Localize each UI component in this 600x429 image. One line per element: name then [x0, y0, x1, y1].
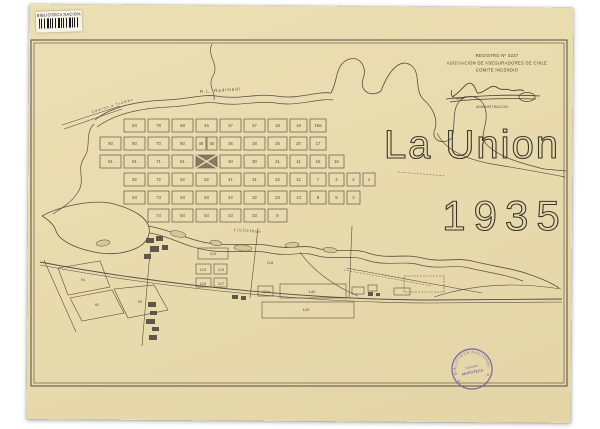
block-number: 81: [132, 159, 137, 164]
block-number: 49: [199, 141, 204, 146]
block-number: 60: [180, 141, 185, 146]
block-number: 33: [252, 213, 257, 218]
block-number: 91: [108, 159, 113, 164]
building: [162, 245, 168, 250]
street-south-1: [250, 228, 258, 298]
signature: [446, 83, 540, 102]
road-east-2: [434, 285, 561, 297]
field-line-2: [142, 252, 150, 346]
parcel-number: 115: [218, 267, 225, 272]
block-number: 73: [156, 195, 161, 200]
signature-flourish: [446, 90, 540, 102]
block-number: 26: [275, 141, 280, 146]
block-number: 27: [252, 123, 257, 128]
block-number: 82: [132, 177, 137, 182]
parcel-number: 113: [200, 267, 207, 272]
block-number: 13: [296, 195, 301, 200]
registro-number: REGISTRO Nº 3237: [476, 53, 519, 58]
block-number: 31: [252, 177, 257, 182]
building: [241, 296, 246, 300]
map-label: Llollelhue: [234, 227, 262, 234]
block-number: 74: [156, 213, 161, 218]
parcel-number: 92: [95, 302, 100, 307]
block-number: 36: [228, 141, 233, 146]
road-east-1: [346, 268, 482, 293]
block-number: 20: [296, 141, 301, 146]
building: [152, 327, 159, 331]
block-number: 18: [275, 123, 280, 128]
building-outline: [352, 287, 364, 294]
block-number: 71: [156, 159, 161, 164]
oxbow-lagoon: [42, 202, 149, 253]
block-number: 23: [275, 195, 280, 200]
river-island: [96, 239, 111, 247]
block-number: 83: [132, 195, 137, 200]
parcel-number: 118: [267, 260, 274, 265]
block-number: 21: [275, 159, 280, 164]
building: [156, 236, 163, 241]
block-number: 50: [210, 141, 215, 146]
creek-west: [53, 124, 94, 214]
registro-committee: COMITE INCENDIO: [476, 68, 519, 73]
block-number: 72: [156, 177, 161, 182]
parcel-number: 120: [303, 307, 310, 312]
parcel-number: 91: [81, 277, 86, 282]
building: [368, 292, 373, 296]
river-island: [170, 229, 187, 238]
building: [148, 302, 156, 307]
map-title: La Union: [384, 123, 560, 167]
parcel-number: 117: [218, 281, 225, 286]
block-number: 53: [204, 195, 209, 200]
block-number: 17: [316, 141, 321, 146]
block-number: 58: [180, 123, 185, 128]
block-number: 37: [228, 123, 233, 128]
block-number: 64: [180, 213, 185, 218]
building: [144, 254, 151, 259]
road-trumao-1: [62, 106, 120, 125]
block-number: 61: [180, 159, 185, 164]
block-number: 5: [335, 195, 338, 200]
block-number: 30: [252, 159, 257, 164]
block-number: 16: [316, 159, 321, 164]
block-number: 28: [252, 141, 257, 146]
building: [149, 335, 157, 340]
building-outline: [394, 288, 410, 295]
block-number: 43: [228, 213, 233, 218]
block-number: 32: [252, 195, 257, 200]
signature-loop: [519, 93, 535, 102]
block-number: 46: [204, 123, 209, 128]
scanned-map-page: { "library_label": { "text": "BIBLIOTECA…: [0, 0, 600, 429]
block-number: 19a: [314, 123, 322, 128]
signature-caption: ADMINISTRACION: [476, 105, 508, 109]
micro-text-railway: [344, 270, 432, 286]
parcel-number: 93: [138, 299, 143, 304]
street-south-2: [349, 226, 352, 298]
block-number: 80: [132, 141, 137, 146]
micro-text-river: [398, 172, 446, 176]
registro-block: REGISTRO Nº 3237 ASOCIACION DE ASEGURADO…: [446, 53, 547, 109]
block-number: 2: [352, 177, 355, 182]
building-outline: [368, 285, 377, 291]
block-number: 90: [108, 141, 113, 146]
block-number: 79: [156, 123, 161, 128]
river-island: [234, 244, 252, 252]
block-number: 7: [317, 177, 320, 182]
building: [146, 238, 154, 243]
block-number: 9: [276, 213, 279, 218]
stamp-star-left-icon: ★: [457, 379, 462, 384]
parcel-number: 119a: [262, 289, 271, 294]
river-island: [210, 240, 223, 247]
block-number: 19: [296, 123, 301, 128]
parcel-number: 116: [200, 281, 207, 286]
block-number: 84: [132, 123, 137, 128]
map-year: 1935: [442, 192, 567, 239]
block-number: 52: [204, 177, 209, 182]
block-number: 15: [334, 159, 339, 164]
parcel-number: 114: [210, 251, 217, 256]
building: [232, 295, 238, 299]
block-number: 11: [296, 159, 301, 164]
building: [376, 293, 380, 296]
block-number: 54: [204, 213, 209, 218]
river-island: [323, 247, 337, 253]
block-number: 4: [335, 177, 338, 182]
block-number: 1: [368, 177, 371, 182]
block-number: 70: [156, 141, 161, 146]
block-number: 8: [317, 195, 320, 200]
parcel-number: 140: [309, 289, 316, 294]
block-number: 22: [275, 177, 280, 182]
registro-association: ASOCIACION DE ASEGURADORES DE CHILE: [447, 61, 548, 66]
railway-line-1: [40, 262, 562, 300]
map-canvas: 847958463727181919a908070604950362826201…: [0, 0, 600, 429]
block-number: 42: [228, 195, 233, 200]
block-number: 62: [180, 177, 185, 182]
building: [146, 319, 155, 324]
block-number: 40: [228, 159, 233, 164]
block-number: 3: [352, 195, 355, 200]
building: [150, 246, 159, 252]
map-label: R.L. Radimadi: [200, 86, 241, 94]
block-number: 63: [180, 195, 185, 200]
block-number: 41: [228, 177, 233, 182]
block-number: 12: [296, 177, 301, 182]
map-label: Camino a Trumao: [91, 97, 134, 114]
